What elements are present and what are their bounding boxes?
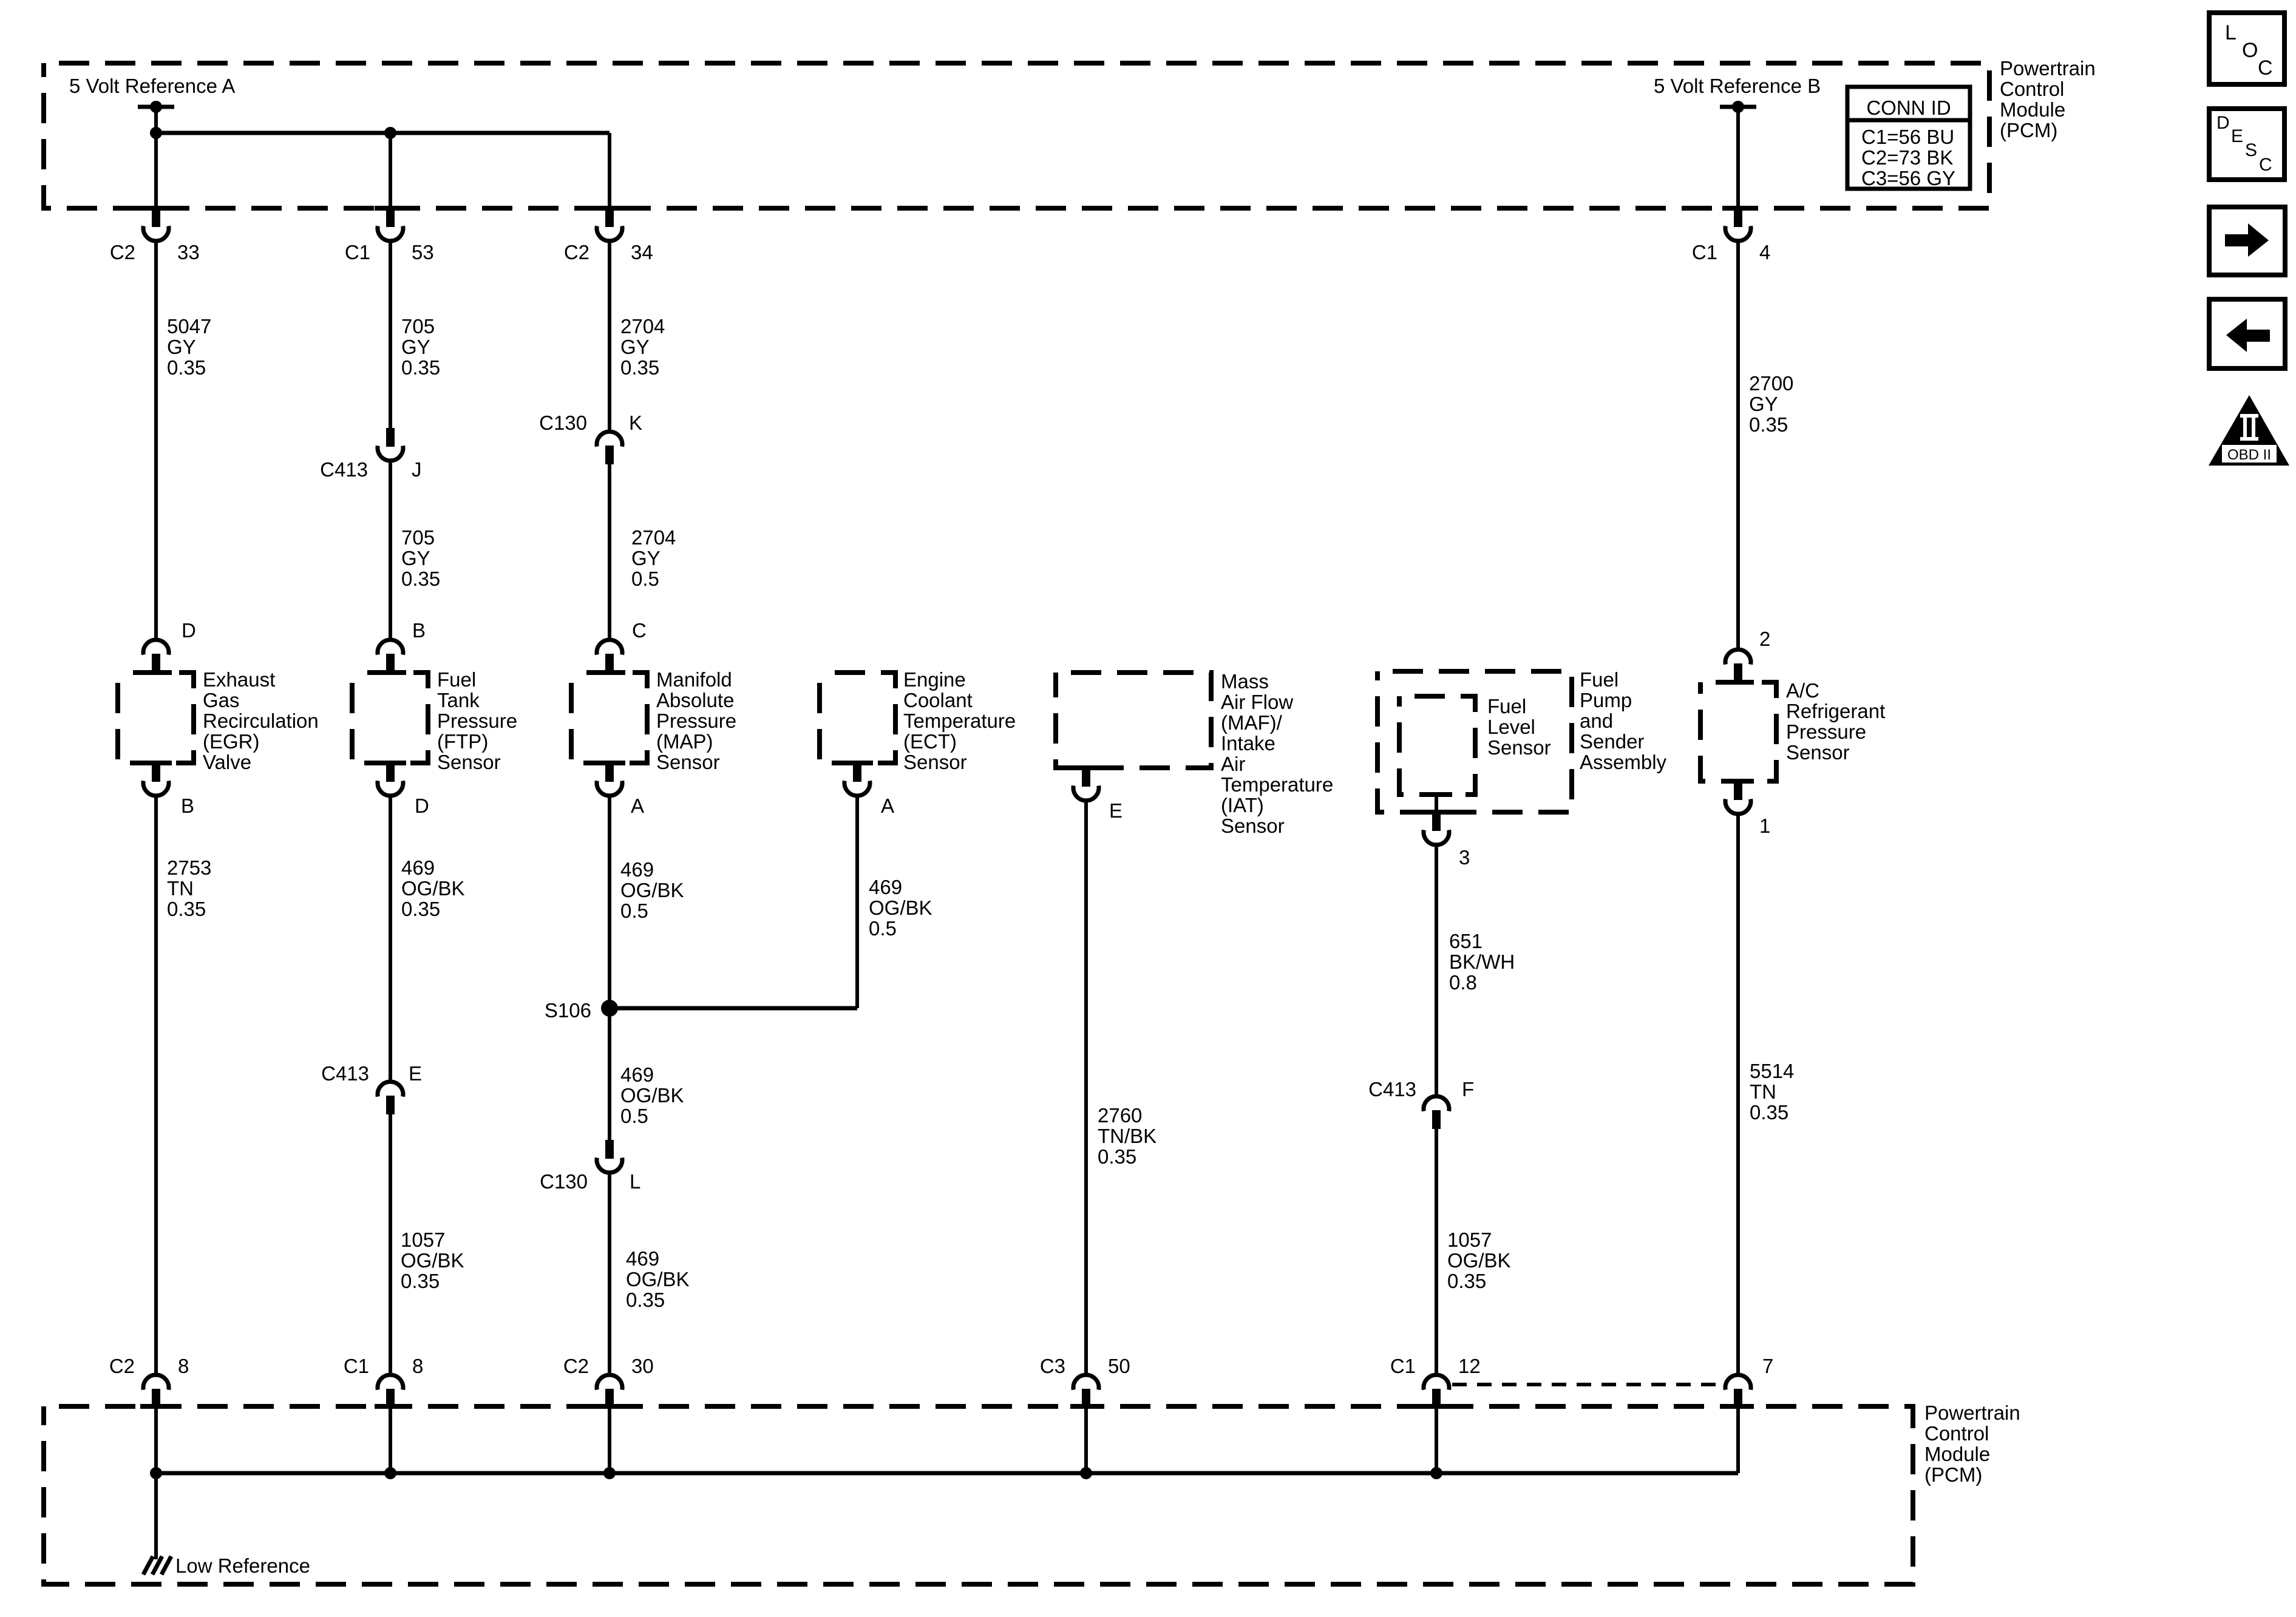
svg-text:0.35: 0.35 <box>401 898 440 920</box>
svg-text:TN/BK: TN/BK <box>1098 1125 1156 1147</box>
svg-text:D: D <box>2216 113 2230 133</box>
svg-text:Pump: Pump <box>1580 689 1632 711</box>
svg-text:0.35: 0.35 <box>167 356 206 379</box>
svg-text:Control: Control <box>2000 78 2064 100</box>
svg-text:0.35: 0.35 <box>620 356 659 379</box>
svg-text:5514: 5514 <box>1750 1060 1794 1082</box>
svg-text:0.35: 0.35 <box>1750 1101 1788 1124</box>
svg-text:34: 34 <box>631 241 653 263</box>
svg-text:CONN ID: CONN ID <box>1866 97 1951 119</box>
svg-text:Pressure: Pressure <box>437 710 517 732</box>
svg-text:C413: C413 <box>1368 1078 1416 1100</box>
svg-text:2704: 2704 <box>631 526 676 549</box>
svg-text:2760: 2760 <box>1098 1104 1142 1127</box>
svg-text:5047: 5047 <box>167 315 211 337</box>
svg-text:Manifold: Manifold <box>656 668 732 691</box>
svg-text:5 Volt Reference B: 5 Volt Reference B <box>1654 75 1821 97</box>
svg-text:53: 53 <box>412 241 434 263</box>
svg-text:705: 705 <box>401 315 435 337</box>
svg-text:and: and <box>1580 710 1613 732</box>
svg-text:TN: TN <box>167 877 194 900</box>
svg-text:GY: GY <box>401 336 430 358</box>
svg-text:Coolant: Coolant <box>903 689 973 711</box>
svg-text:L: L <box>630 1170 640 1193</box>
svg-text:S106: S106 <box>545 999 591 1022</box>
svg-text:C413: C413 <box>320 458 368 481</box>
svg-text:(FTP): (FTP) <box>437 730 488 753</box>
svg-text:C130: C130 <box>540 1170 588 1193</box>
svg-text:0.5: 0.5 <box>620 900 648 922</box>
svg-text:2700: 2700 <box>1749 372 1793 395</box>
svg-text:Engine: Engine <box>903 668 966 691</box>
svg-text:4: 4 <box>1759 241 1770 263</box>
svg-text:GY: GY <box>167 336 196 358</box>
svg-text:OG/BK: OG/BK <box>869 897 932 919</box>
svg-text:Module: Module <box>2000 98 2065 121</box>
svg-text:Refrigerant: Refrigerant <box>1786 700 1885 722</box>
svg-text:0.35: 0.35 <box>167 898 206 920</box>
svg-text:Mass: Mass <box>1221 670 1269 693</box>
svg-text:469: 469 <box>401 856 435 879</box>
svg-text:OG/BK: OG/BK <box>626 1268 690 1290</box>
svg-text:C2: C2 <box>564 241 589 263</box>
svg-text:3: 3 <box>1459 846 1470 869</box>
svg-text:Intake: Intake <box>1221 732 1275 754</box>
svg-text:Module: Module <box>1924 1443 1990 1465</box>
svg-text:BK/WH: BK/WH <box>1449 951 1515 973</box>
svg-text:8: 8 <box>178 1355 189 1377</box>
svg-text:C1: C1 <box>1390 1355 1416 1377</box>
svg-text:(MAF)/: (MAF)/ <box>1221 711 1283 734</box>
svg-text:D: D <box>415 795 429 817</box>
svg-text:Sensor: Sensor <box>1786 741 1850 764</box>
svg-text:Temperature: Temperature <box>903 710 1016 732</box>
svg-text:C: C <box>632 619 647 642</box>
svg-text:0.35: 0.35 <box>401 568 440 590</box>
svg-text:GY: GY <box>1749 393 1778 415</box>
svg-text:B: B <box>181 795 194 817</box>
svg-text:A/C: A/C <box>1786 679 1819 702</box>
svg-text:C130: C130 <box>539 412 587 434</box>
svg-text:Pressure: Pressure <box>656 710 736 732</box>
svg-text:Gas: Gas <box>203 689 240 711</box>
svg-text:OG/BK: OG/BK <box>620 1084 684 1107</box>
svg-text:B: B <box>412 619 426 642</box>
svg-text:(MAP): (MAP) <box>656 730 713 753</box>
svg-text:OG/BK: OG/BK <box>401 877 465 900</box>
svg-text:(EGR): (EGR) <box>203 730 260 753</box>
svg-text:0.35: 0.35 <box>401 356 440 379</box>
svg-text:2753: 2753 <box>167 856 211 879</box>
svg-text:OBD II: OBD II <box>2227 447 2271 463</box>
svg-text:F: F <box>1462 1078 1474 1100</box>
svg-text:5 Volt Reference A: 5 Volt Reference A <box>69 75 235 97</box>
svg-text:Sender: Sender <box>1580 730 1644 753</box>
svg-text:Air: Air <box>1221 753 1245 775</box>
svg-text:0.35: 0.35 <box>401 1270 440 1292</box>
svg-text:Sensor: Sensor <box>656 751 720 773</box>
svg-text:(ECT): (ECT) <box>903 730 957 753</box>
svg-text:Sensor: Sensor <box>1221 815 1285 837</box>
svg-text:Fuel: Fuel <box>1580 668 1618 691</box>
svg-text:Sensor: Sensor <box>903 751 967 773</box>
svg-text:GY: GY <box>620 336 650 358</box>
svg-text:E: E <box>2231 126 2243 146</box>
svg-text:K: K <box>629 412 642 434</box>
svg-text:Tank: Tank <box>437 689 480 711</box>
svg-text:L: L <box>2225 21 2237 44</box>
svg-text:0.35: 0.35 <box>626 1289 665 1311</box>
svg-text:12: 12 <box>1458 1355 1481 1377</box>
svg-text:Powertrain: Powertrain <box>1924 1402 2020 1424</box>
svg-text:Valve: Valve <box>203 751 251 773</box>
svg-text:C2: C2 <box>109 1355 135 1377</box>
svg-text:D: D <box>182 619 196 642</box>
svg-text:0.35: 0.35 <box>1447 1270 1486 1292</box>
svg-text:Low Reference: Low Reference <box>175 1554 310 1577</box>
svg-text:C: C <box>2258 56 2273 80</box>
svg-text:469: 469 <box>869 876 902 898</box>
svg-text:TN: TN <box>1750 1080 1776 1103</box>
svg-text:30: 30 <box>631 1355 654 1377</box>
svg-text:0.35: 0.35 <box>1098 1145 1136 1168</box>
svg-text:E: E <box>409 1062 422 1085</box>
svg-text:469: 469 <box>626 1247 659 1270</box>
svg-text:Level: Level <box>1487 716 1535 738</box>
svg-text:0.5: 0.5 <box>631 568 659 590</box>
svg-text:1: 1 <box>1759 815 1770 837</box>
svg-text:469: 469 <box>620 858 654 881</box>
svg-text:Absolute: Absolute <box>656 689 734 711</box>
svg-text:Powertrain: Powertrain <box>2000 57 2096 80</box>
svg-text:8: 8 <box>412 1355 423 1377</box>
svg-text:Recirculation: Recirculation <box>203 710 319 732</box>
svg-text:50: 50 <box>1108 1355 1130 1377</box>
svg-text:C: C <box>2259 155 2272 175</box>
svg-text:A: A <box>631 795 644 817</box>
svg-text:S: S <box>2245 140 2257 160</box>
svg-text:C2=73 BK: C2=73 BK <box>1861 146 1953 169</box>
svg-text:Pressure: Pressure <box>1786 720 1866 743</box>
svg-text:Sensor: Sensor <box>1487 736 1551 759</box>
svg-text:Control: Control <box>1924 1422 1989 1445</box>
svg-text:GY: GY <box>631 547 661 569</box>
svg-text:OG/BK: OG/BK <box>1447 1249 1511 1272</box>
svg-text:0.8: 0.8 <box>1449 971 1477 994</box>
svg-text:O: O <box>2242 39 2258 62</box>
svg-text:0.5: 0.5 <box>620 1105 648 1127</box>
svg-text:2: 2 <box>1759 628 1770 650</box>
svg-text:1057: 1057 <box>401 1229 445 1251</box>
svg-text:C3: C3 <box>1040 1355 1065 1377</box>
svg-text:OG/BK: OG/BK <box>620 879 684 901</box>
svg-text:0.5: 0.5 <box>869 917 897 940</box>
svg-text:705: 705 <box>401 526 435 549</box>
svg-text:33: 33 <box>177 241 200 263</box>
svg-text:(PCM): (PCM) <box>2000 119 2057 141</box>
svg-text:Sensor: Sensor <box>437 751 501 773</box>
svg-text:(IAT): (IAT) <box>1221 794 1264 816</box>
svg-text:C1: C1 <box>1692 241 1717 263</box>
svg-text:7: 7 <box>1762 1355 1773 1377</box>
svg-text:A: A <box>881 795 894 817</box>
svg-text:Exhaust: Exhaust <box>203 668 275 691</box>
svg-text:J: J <box>412 458 422 481</box>
svg-text:C1: C1 <box>345 241 370 263</box>
svg-text:C1=56 BU: C1=56 BU <box>1861 126 1954 148</box>
svg-text:C2: C2 <box>563 1355 589 1377</box>
svg-text:Assembly: Assembly <box>1580 751 1667 773</box>
svg-text:OG/BK: OG/BK <box>401 1249 464 1272</box>
svg-text:Fuel: Fuel <box>437 668 476 691</box>
svg-text:1057: 1057 <box>1447 1229 1492 1251</box>
svg-text:(PCM): (PCM) <box>1924 1463 1982 1486</box>
svg-text:C2: C2 <box>110 241 135 263</box>
svg-text:GY: GY <box>401 547 430 569</box>
svg-text:469: 469 <box>620 1063 654 1086</box>
svg-text:0.35: 0.35 <box>1749 413 1788 436</box>
svg-text:651: 651 <box>1449 930 1483 952</box>
svg-text:E: E <box>1109 799 1123 822</box>
svg-text:C1: C1 <box>344 1355 369 1377</box>
svg-text:2704: 2704 <box>620 315 665 337</box>
svg-text:C413: C413 <box>321 1062 369 1085</box>
svg-text:Air Flow: Air Flow <box>1221 691 1293 713</box>
svg-text:C3=56 GY: C3=56 GY <box>1861 167 1955 189</box>
svg-text:Temperature: Temperature <box>1221 773 1333 796</box>
svg-text:Fuel: Fuel <box>1487 695 1526 717</box>
